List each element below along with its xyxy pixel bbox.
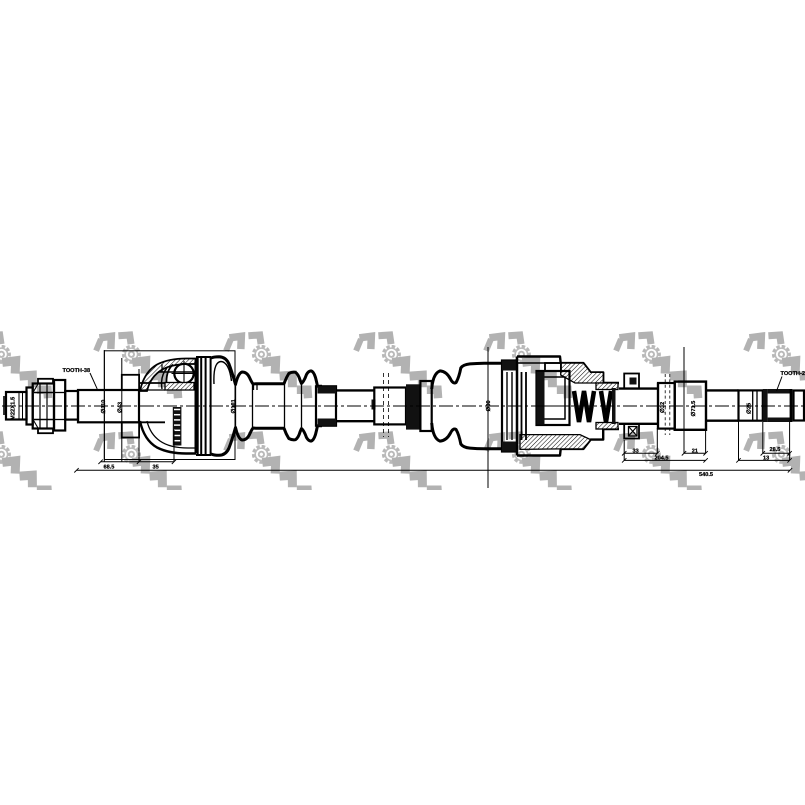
svg-text:TOOTH-38: TOOTH-38 [63, 368, 91, 374]
svg-text:∅181: ∅181 [230, 399, 237, 413]
svg-text:204.5: 204.5 [655, 455, 669, 461]
svg-text:68.5: 68.5 [104, 464, 115, 470]
svg-text:∅32: ∅32 [659, 402, 666, 413]
svg-text:21: 21 [692, 448, 698, 454]
svg-text:∅71.5: ∅71.5 [690, 401, 697, 417]
svg-text:∅43: ∅43 [117, 402, 124, 413]
svg-text:13: 13 [763, 455, 769, 461]
svg-text:M22X1.5: M22X1.5 [10, 396, 17, 420]
svg-text:∅30: ∅30 [485, 400, 492, 411]
svg-text:28.5: 28.5 [770, 447, 781, 453]
svg-text:∅110: ∅110 [100, 400, 107, 414]
svg-text:540.5: 540.5 [699, 472, 713, 478]
svg-text:35: 35 [153, 464, 159, 470]
svg-text:TOOTH-28: TOOTH-28 [781, 371, 805, 377]
svg-text:∅25: ∅25 [745, 403, 752, 414]
svg-text:33: 33 [633, 448, 639, 454]
